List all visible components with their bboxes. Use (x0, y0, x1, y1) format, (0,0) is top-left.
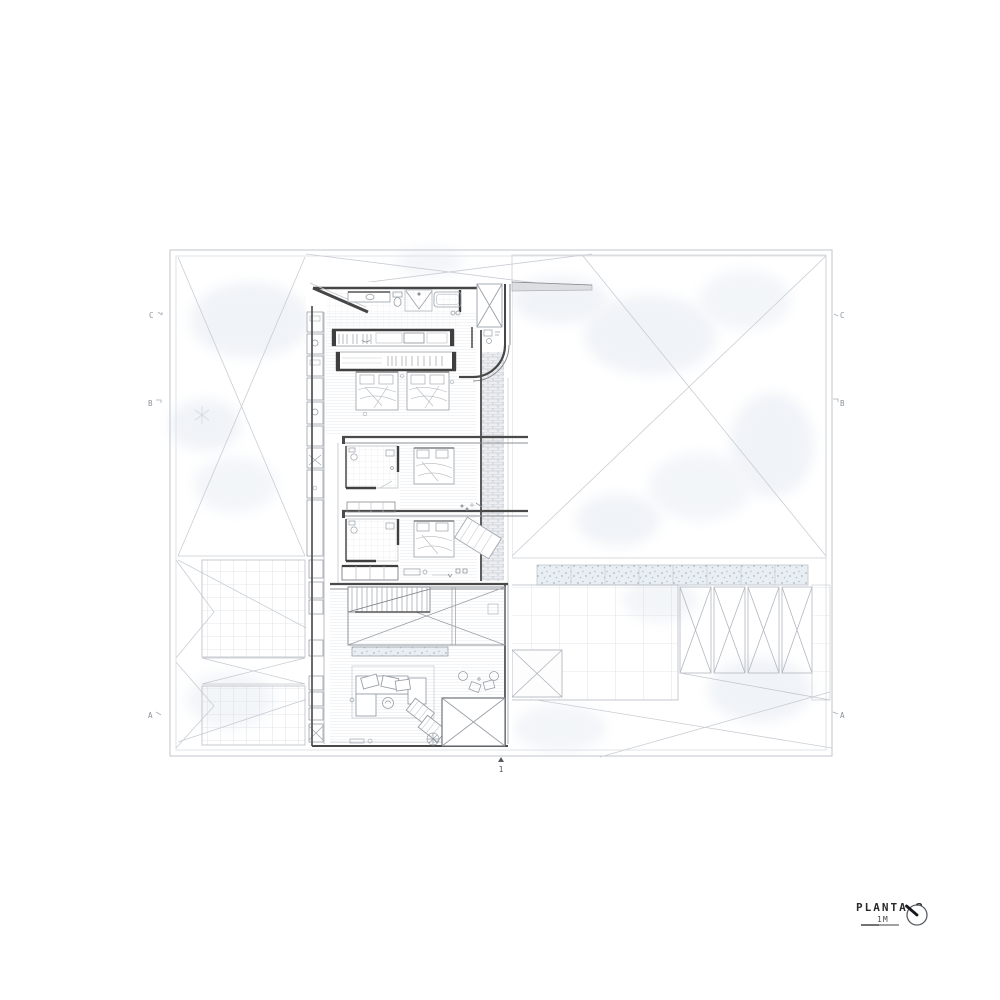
stairs (348, 587, 430, 612)
roof-terrace-void (477, 284, 502, 327)
plan-canvas: C B A C B A 1 PLANTA 2 1M (0, 0, 1000, 1000)
marker-left-c: C (149, 311, 154, 320)
plant-icon (427, 733, 439, 745)
marker-right-a: A (840, 711, 845, 720)
planter-strip (352, 647, 448, 656)
wardrobe-band-1 (332, 330, 454, 346)
marker-right-c: C (840, 311, 845, 320)
marker-right-b: B (840, 399, 845, 408)
pergola-grid-left (202, 560, 305, 745)
marker-bottom-1: 1 (499, 765, 504, 774)
skylight-void (442, 698, 505, 746)
section-marker-1: 1 (498, 757, 504, 774)
bed-1 (356, 372, 398, 410)
title-block: PLANTA 2 1M (856, 901, 927, 925)
scale-label: 1M (877, 915, 889, 924)
architectural-sheet: C B A C B A 1 PLANTA 2 1M (0, 0, 1000, 1000)
marker-left-b: B (148, 399, 153, 408)
marker-left-a: A (148, 711, 153, 720)
bed-2 (407, 372, 449, 410)
